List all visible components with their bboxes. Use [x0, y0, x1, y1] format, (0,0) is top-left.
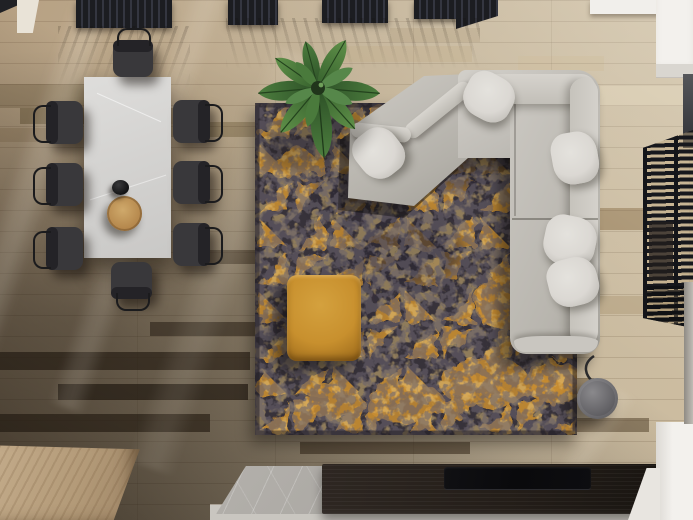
tv	[444, 467, 591, 490]
floor-lamp	[577, 378, 618, 419]
dining-chair	[46, 227, 83, 270]
teapot	[112, 180, 129, 195]
dining-table	[84, 77, 171, 258]
pouf	[287, 275, 361, 361]
ceiling-slat-panel	[76, 0, 172, 28]
dining-chair	[111, 262, 152, 299]
marble-vein	[97, 93, 161, 122]
dining-chair	[46, 163, 83, 206]
wall-sliver-right	[684, 282, 693, 424]
sofa-seam	[514, 104, 516, 216]
dining-chair	[113, 40, 153, 77]
white-cabinet-bottom	[656, 422, 693, 520]
blind-dark-panel	[649, 222, 673, 280]
serving-bowl	[107, 196, 142, 231]
dining-chair	[173, 100, 210, 143]
plant-leaves	[257, 36, 380, 159]
dining-chair	[173, 223, 210, 266]
plant	[238, 12, 402, 164]
living-room-render	[0, 0, 693, 520]
dining-chair	[46, 101, 83, 144]
dining-chair	[173, 161, 210, 204]
white-cabinet-top	[590, 0, 660, 14]
